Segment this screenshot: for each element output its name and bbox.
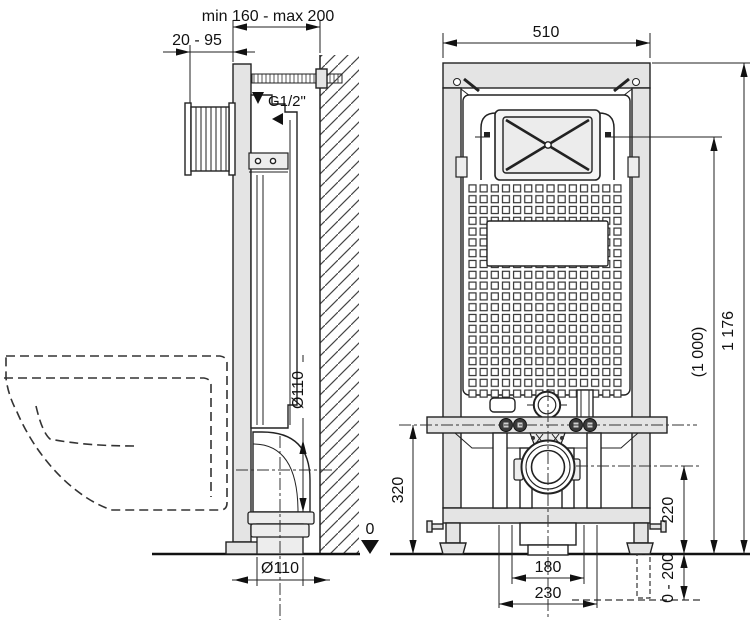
- front-view: 510 1 176 (1 000) 320 220 0: [390, 24, 750, 620]
- svg-text:220: 220: [660, 497, 677, 524]
- svg-text:20 - 95: 20 - 95: [172, 32, 222, 49]
- frame-left-foot: [440, 543, 466, 554]
- dim-outlet-diameter: Ø110: [232, 557, 330, 586]
- wall-section: [320, 55, 359, 554]
- datum-zero: 0: [361, 521, 379, 554]
- dim-frame-width: 510: [443, 24, 650, 58]
- svg-text:320: 320: [390, 477, 407, 504]
- frame-top-rail: [443, 63, 650, 88]
- frame-bottom-rail: [443, 508, 650, 523]
- frame-left-leg: [446, 523, 460, 543]
- flush-actuator: [185, 103, 235, 175]
- drain-elbow: [248, 432, 314, 524]
- svg-text:(1 000): (1 000): [690, 327, 707, 378]
- svg-text:min 160 - max 200: min 160 - max 200: [202, 8, 335, 25]
- svg-text:180: 180: [535, 559, 562, 576]
- insulation-grid: [467, 183, 623, 399]
- dim-fixing-height: 320: [390, 425, 413, 554]
- svg-text:1 176: 1 176: [720, 311, 737, 351]
- datum-zero-label: 0: [366, 521, 375, 538]
- leg-extension-dashed: [637, 554, 650, 598]
- cistern-front: [456, 95, 639, 399]
- water-connection-label: G1/2": [268, 93, 306, 110]
- frame-right-column: [632, 88, 650, 508]
- technical-drawing-canvas: G1/2" min 160 - max 200: [0, 0, 750, 627]
- svg-text:510: 510: [533, 24, 560, 41]
- svg-text:230: 230: [535, 585, 562, 602]
- svg-text:Ø110: Ø110: [290, 371, 307, 409]
- datum-triangle-icon: [361, 540, 379, 554]
- frame-foot-side: [226, 542, 258, 554]
- dim-foot-adjust-range: 0 - 200: [572, 553, 700, 603]
- frame-right-foot: [627, 543, 653, 554]
- svg-text:Ø110: Ø110: [261, 560, 299, 577]
- tank-label-plate: [487, 221, 608, 266]
- wc-frame-installation-drawing: G1/2" min 160 - max 200: [0, 0, 750, 627]
- flush-plate-opening: [495, 110, 600, 180]
- toilet-bowl-outline: [4, 356, 227, 510]
- side-view: G1/2" min 160 - max 200: [4, 8, 379, 620]
- svg-text:0 - 200: 0 - 200: [660, 553, 677, 603]
- frame-left-column: [443, 88, 461, 508]
- frame-right-leg: [634, 523, 648, 543]
- right-locking-screw: [650, 524, 662, 529]
- left-locking-screw: [431, 524, 443, 529]
